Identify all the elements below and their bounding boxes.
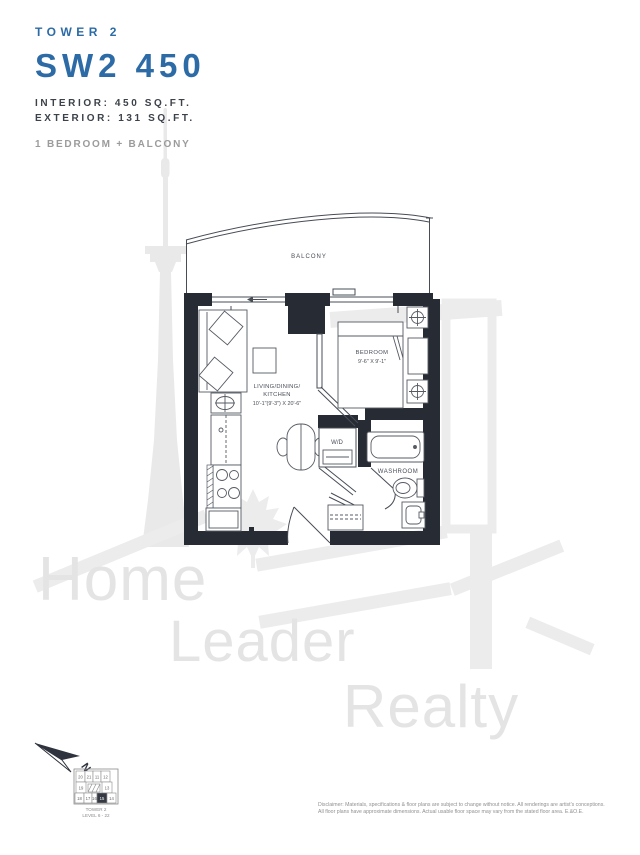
- washroom-label: WASHROOM: [378, 469, 418, 475]
- disclaimer-line2: All floor plans have approximate dimensi…: [318, 809, 584, 815]
- disclaimer: Disclaimer: Materials, specifications & …: [318, 802, 605, 815]
- kitchen: [206, 393, 241, 531]
- oven-hatch: [207, 465, 213, 508]
- keyplan-tower-caption: TOWER 2: [86, 807, 107, 812]
- kitchen-counter: [211, 415, 241, 465]
- key-plan: 20 21 11 12 19 13 18 17 16 15 14 TOWER 2…: [74, 769, 118, 818]
- keyplan-unit-19: 19: [79, 786, 84, 791]
- keyplan-unit-17: 17: [86, 796, 91, 801]
- living-label-line2: KITCHEN: [263, 392, 291, 398]
- vanity-sink: [402, 502, 425, 528]
- keyplan-unit-20: 20: [78, 775, 83, 780]
- kitchen-sink: [211, 393, 241, 413]
- hall-closet: [328, 505, 363, 530]
- bedroom-label: BEDROOM: [356, 350, 389, 356]
- north-arrow: N: [35, 743, 93, 775]
- interior-area: INTERIOR: 450 SQ.FT.: [35, 96, 206, 111]
- balcony-label: BALCONY: [291, 254, 327, 260]
- keyplan-unit-14: 14: [109, 796, 114, 801]
- unit-configuration: 1 BEDROOM + BALCONY: [35, 139, 206, 150]
- plan-header: TOWER 2 SW2 450 INTERIOR: 450 SQ.FT. EXT…: [35, 25, 206, 150]
- keyplan-unit-12: 12: [103, 775, 108, 780]
- keyplan-unit-13: 13: [105, 786, 110, 791]
- sofa: [199, 310, 247, 392]
- toilet: [393, 478, 424, 498]
- keyplan-unit-21: 21: [87, 775, 92, 780]
- living-label-line1: LIVING/DINING/: [254, 384, 301, 390]
- coffee-table: [253, 348, 276, 373]
- wd-label: W/D: [331, 440, 343, 446]
- living-dimensions: 10'-1"(9'-3") X 20'-6": [253, 401, 301, 407]
- keyplan-levels-caption: LEVEL 6 - 22: [82, 813, 110, 818]
- washer-dryer-closet: W/D: [319, 428, 356, 467]
- bedroom-dimensions: 9'-6" X 9'-1": [358, 359, 386, 365]
- keyplan-unit-16: 16: [92, 796, 97, 801]
- bedroom-closet: [408, 338, 428, 374]
- washroom: [367, 432, 425, 528]
- bathtub: [367, 432, 424, 462]
- stove: [213, 465, 241, 508]
- bed: [338, 322, 403, 408]
- kitchen-cabinet: [206, 508, 241, 531]
- keyplan-unit-18: 18: [77, 796, 82, 801]
- disclaimer-line1: Disclaimer: Materials, specifications & …: [318, 802, 605, 808]
- exterior-area: EXTERIOR: 131 SQ.FT.: [35, 111, 206, 126]
- tower-label: TOWER 2: [35, 25, 206, 39]
- keyplan-unit-15-highlighted: 15: [100, 796, 105, 801]
- keyplan-unit-11: 11: [95, 775, 100, 780]
- entry-door: [288, 507, 330, 543]
- unit-name: SW2 450: [35, 47, 206, 85]
